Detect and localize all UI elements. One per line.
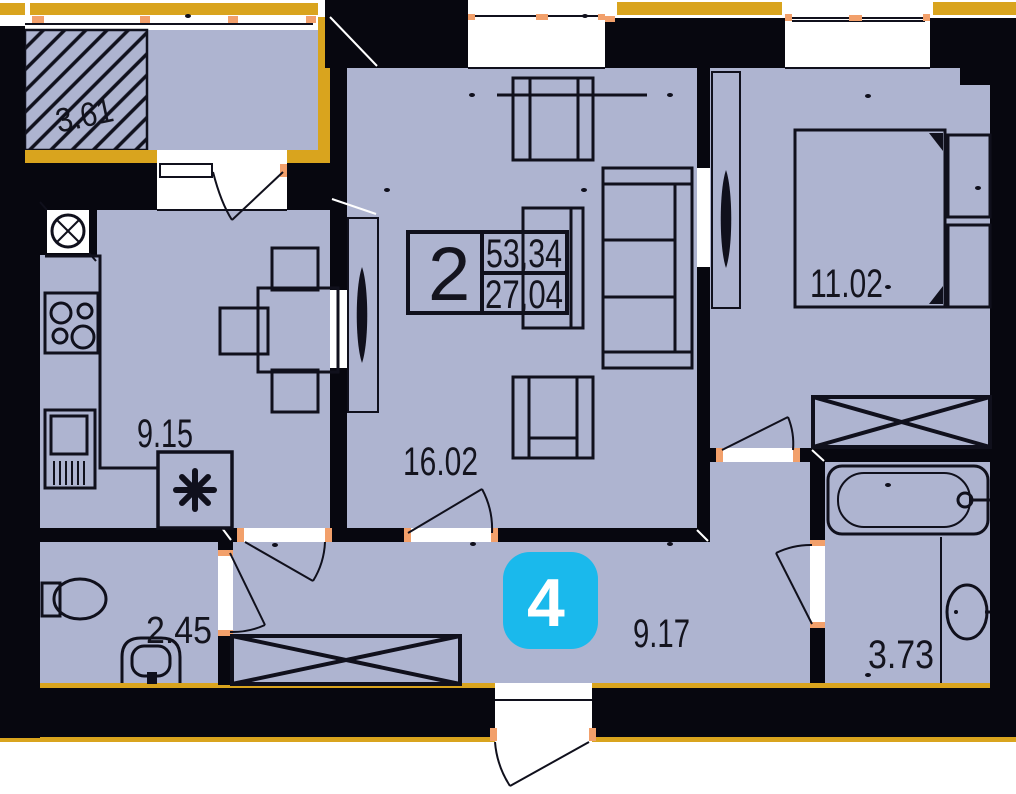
apartment-living-area: 27,04 (485, 273, 563, 317)
apartment-number: 2 (428, 232, 470, 317)
room-area-wc: 2.45 (146, 610, 212, 652)
room-area-kitchen: 9.15 (137, 412, 193, 456)
unit-badge-number: 4 (527, 565, 565, 641)
floor-plan-svg: 3.61 (0, 0, 1016, 794)
room-area-bedroom: 11.02 (810, 262, 883, 306)
apartment-total-area: 53,34 (486, 232, 562, 276)
apartment-info-card: 2 53,34 27,04 (408, 232, 567, 317)
floorplan-canvas: 3.61 (0, 0, 1016, 794)
room-area-hallway: 9.17 (633, 612, 690, 656)
ventilation-icon (40, 202, 96, 261)
room-area-bathroom: 3.73 (868, 633, 934, 677)
appliance-asterisk-icon (158, 452, 232, 528)
balcony-sill (160, 164, 212, 177)
room-area-living: 16.02 (403, 440, 478, 484)
balcony-hatch: 3.61 (25, 30, 147, 150)
unit-badge: 4 (503, 552, 598, 649)
